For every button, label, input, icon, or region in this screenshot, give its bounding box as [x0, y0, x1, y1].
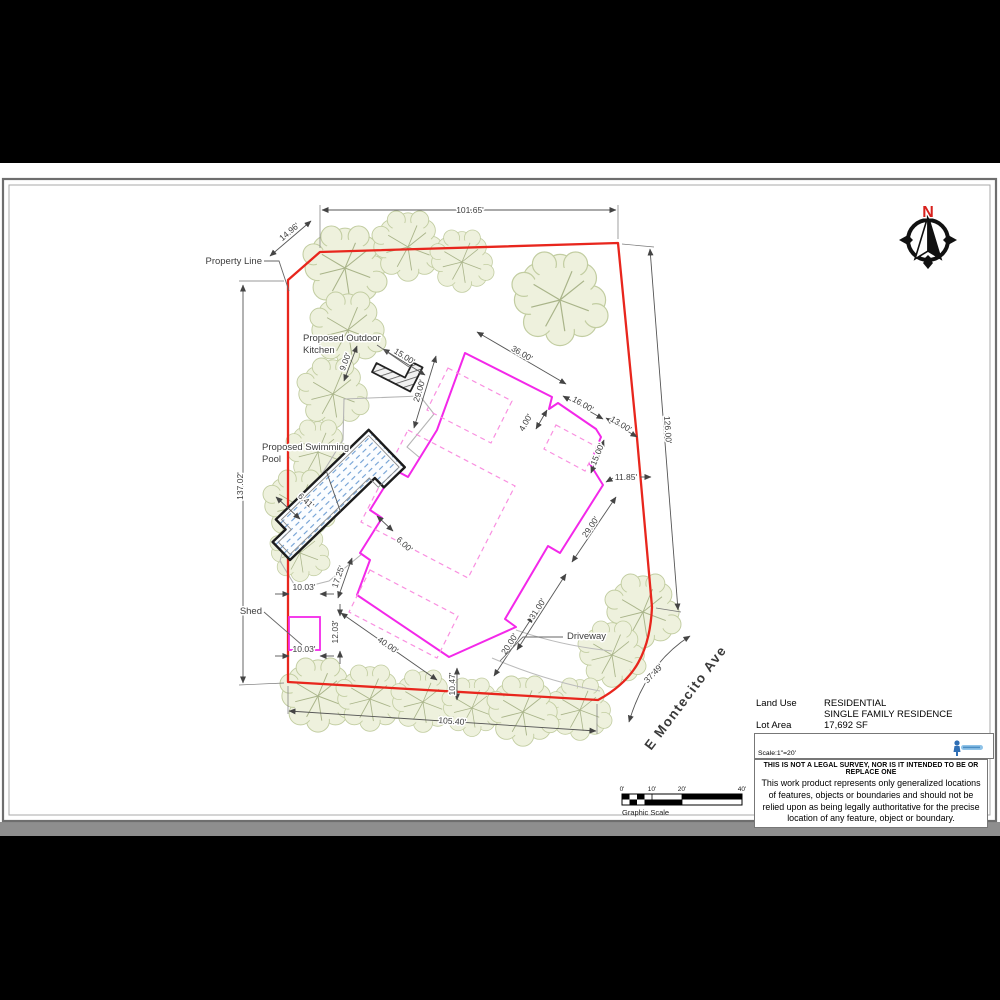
disclaimer-box: THIS IS NOT A LEGAL SURVEY, NOR IS IT IN…	[754, 759, 988, 828]
dim-gap-south: 10.47'	[447, 672, 457, 695]
land-use-label: Land Use	[756, 699, 824, 721]
dim-gap-east: 11.85'	[615, 472, 638, 482]
dim-bottom: 105.40'	[438, 715, 467, 727]
dim-shed-width-top: 10.03'	[293, 582, 316, 592]
scale-text: Scale:1"=20'	[758, 750, 796, 757]
disclaimer-body: This work product represents only genera…	[758, 778, 984, 825]
dim-top: 101.65'	[456, 205, 484, 215]
swimming-pool-label-line2: Pool	[262, 454, 281, 465]
surveyor-logo-icon	[948, 739, 990, 757]
land-use-row: Land Use RESIDENTIAL SINGLE FAMILY RESID…	[756, 699, 990, 721]
dim-shed-width-bottom: 10.03'	[293, 644, 316, 654]
site-plan-drawing: 101.65' 14.96' 126.00' 137.02' 105.40' 3…	[0, 0, 1000, 1000]
swimming-pool-label-line1: Proposed Swimming	[262, 442, 349, 453]
lot-area-label: Lot Area	[756, 721, 824, 732]
disclaimer-title: THIS IS NOT A LEGAL SURVEY, NOR IS IT IN…	[758, 762, 984, 776]
scale-tick-0: 0'	[620, 786, 625, 793]
dim-right: 126.00'	[662, 416, 674, 445]
driveway-label: Driveway	[567, 631, 606, 642]
outdoor-kitchen-label-line2: Kitchen	[303, 345, 335, 356]
scale-tick-10: 10'	[648, 786, 656, 793]
lot-area-row: Lot Area 17,692 SF	[756, 721, 990, 732]
dim-left: 137.02'	[235, 472, 245, 500]
scale-tick-40: 40'	[738, 786, 746, 793]
scale-tick-20: 20'	[678, 786, 686, 793]
scale-box: Scale:1"=20'	[754, 733, 994, 759]
lot-area-value: 17,692 SF	[824, 721, 990, 732]
scale-bar-blocks	[622, 794, 742, 805]
shed-label: Shed	[240, 606, 262, 617]
property-line-label: Property Line	[205, 256, 262, 267]
site-plan-screenshot: 101.65' 14.96' 126.00' 137.02' 105.40' 3…	[0, 0, 1000, 1000]
graphic-scale-label: Graphic Scale	[622, 808, 669, 817]
dim-shed-side: 12.03'	[330, 620, 340, 643]
north-label: N	[922, 204, 934, 221]
outdoor-kitchen-label-line1: Proposed Outdoor	[303, 333, 381, 344]
